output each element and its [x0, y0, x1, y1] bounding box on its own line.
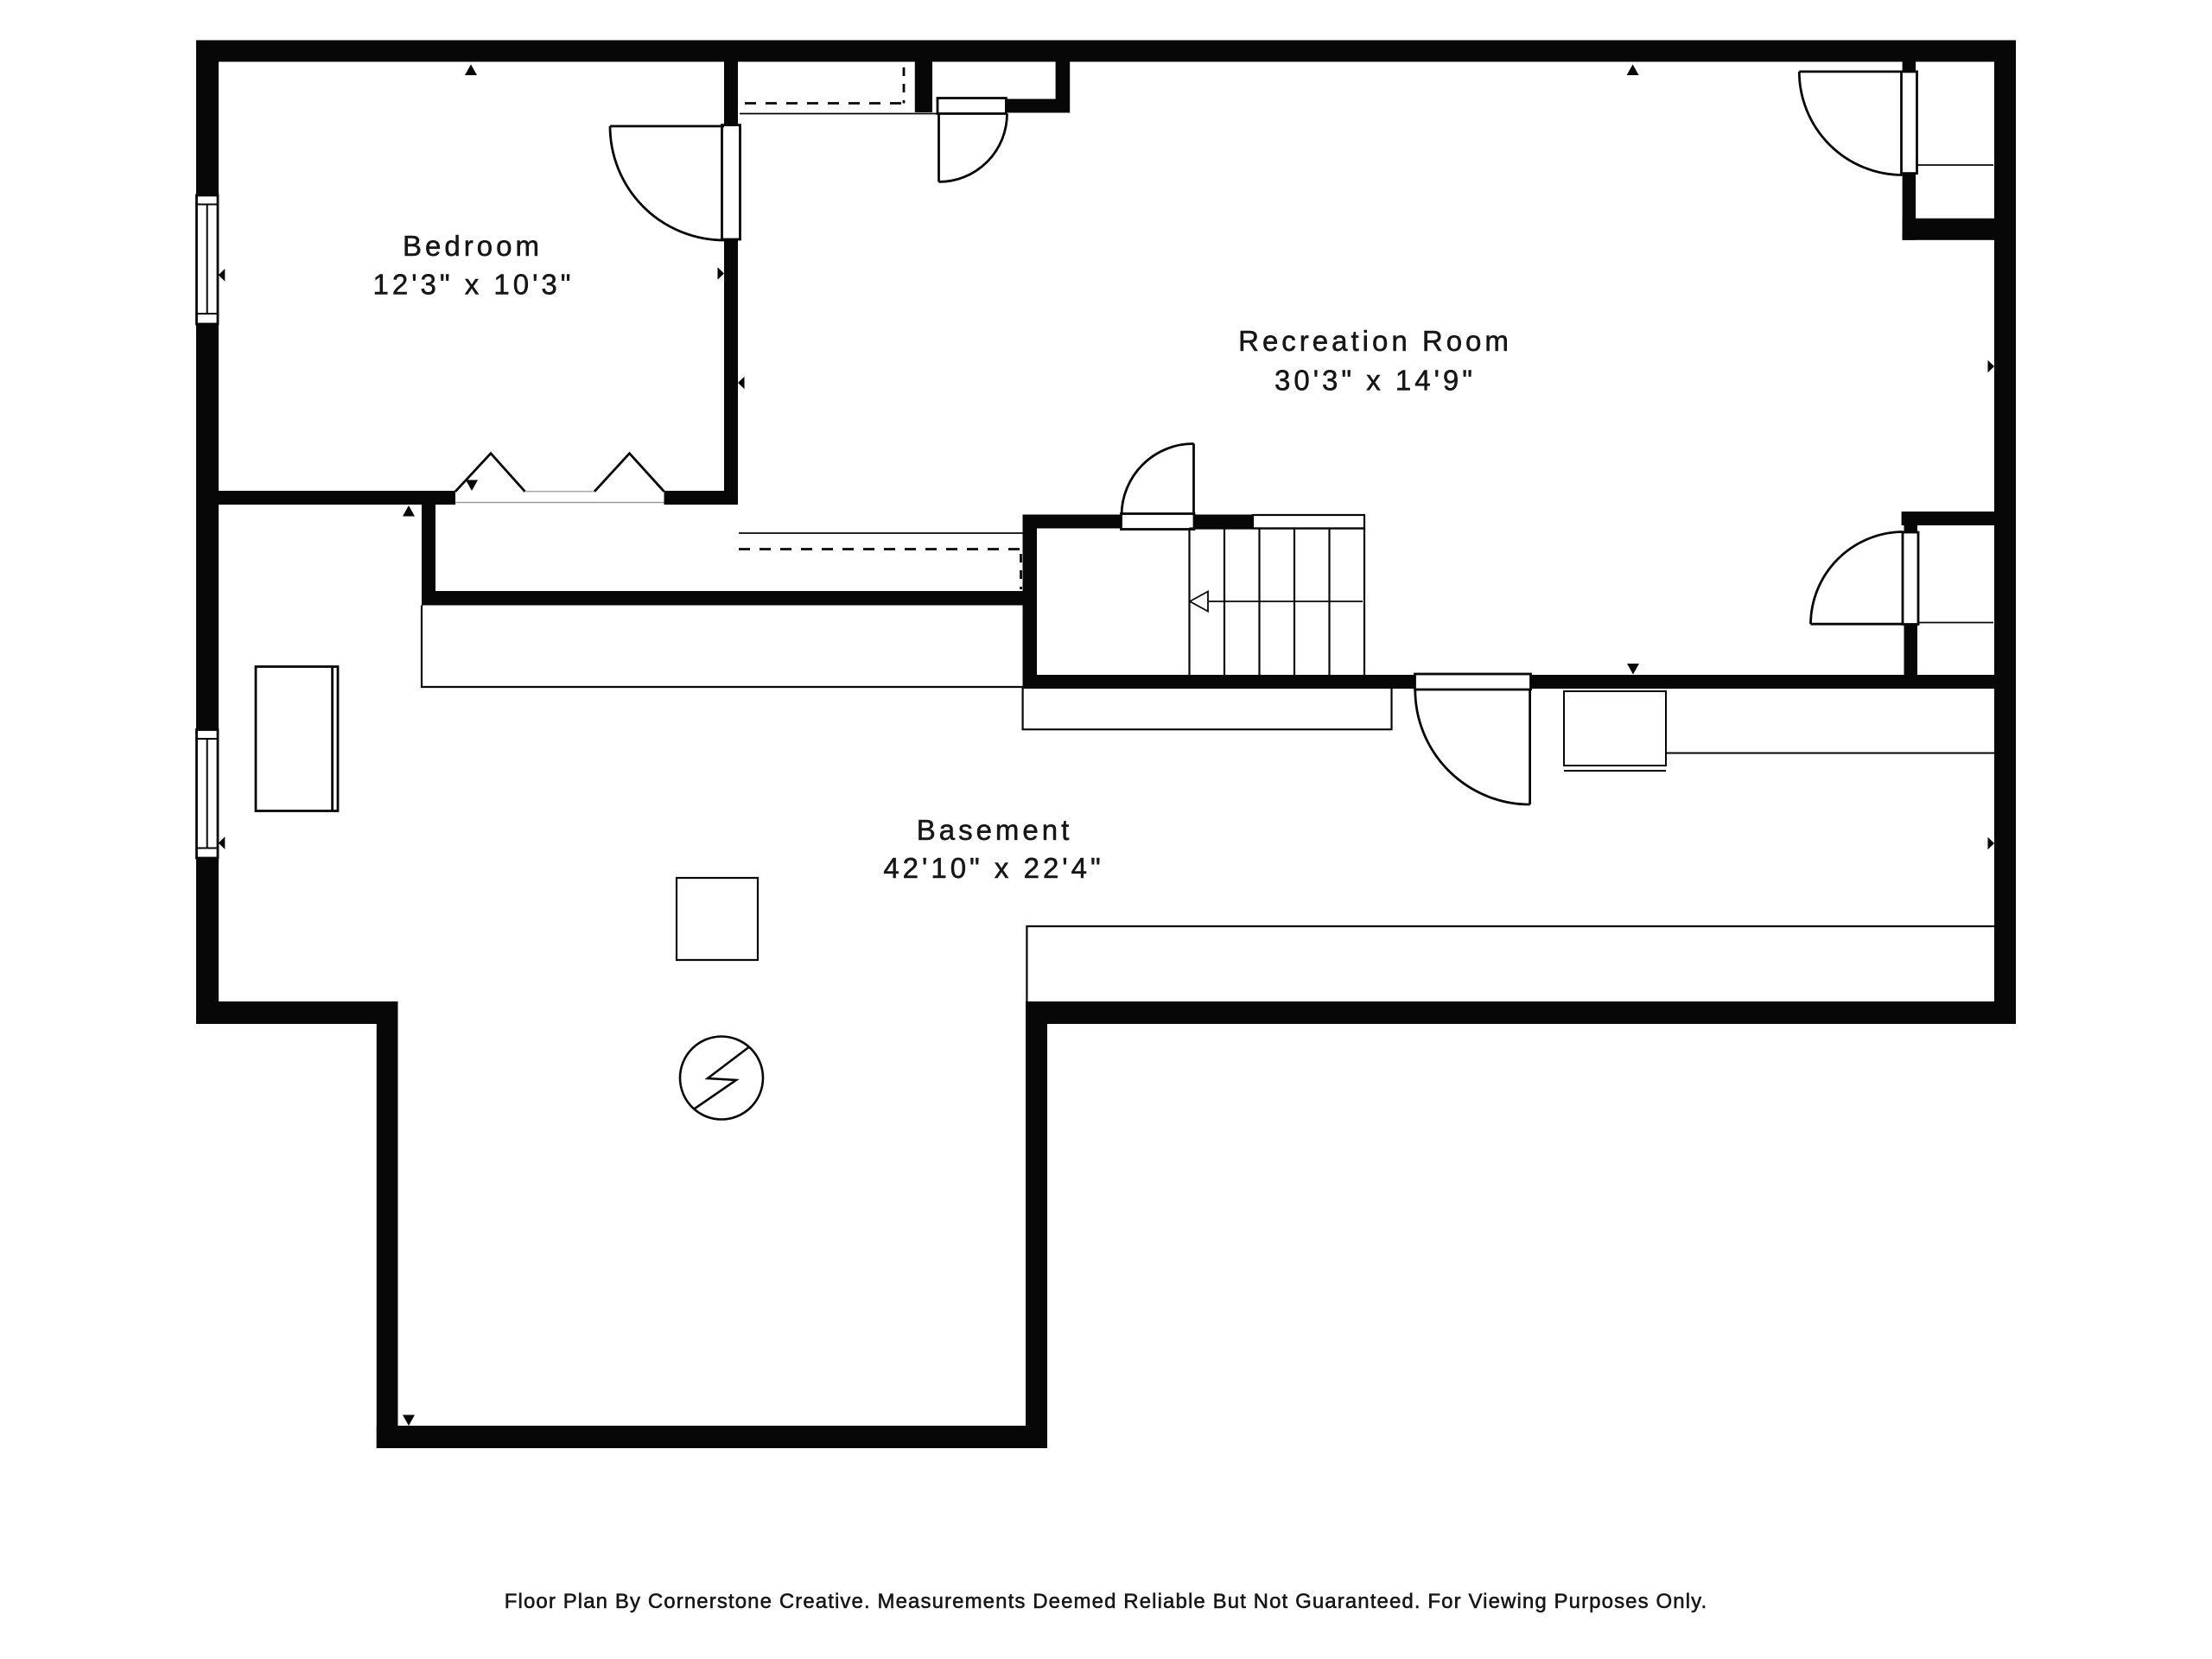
- svg-text:Recreation Room: Recreation Room: [1238, 325, 1512, 357]
- svg-text:Floor Plan By Cornerstone Crea: Floor Plan By Cornerstone Creative. Meas…: [505, 1590, 1707, 1613]
- svg-text:12'3" x 10'3": 12'3" x 10'3": [373, 269, 575, 301]
- svg-text:Bedroom: Bedroom: [403, 230, 543, 262]
- svg-text:42'10" x 22'4": 42'10" x 22'4": [883, 852, 1103, 884]
- svg-text:30'3" x 14'9": 30'3" x 14'9": [1274, 365, 1476, 397]
- svg-text:Basement: Basement: [917, 814, 1073, 846]
